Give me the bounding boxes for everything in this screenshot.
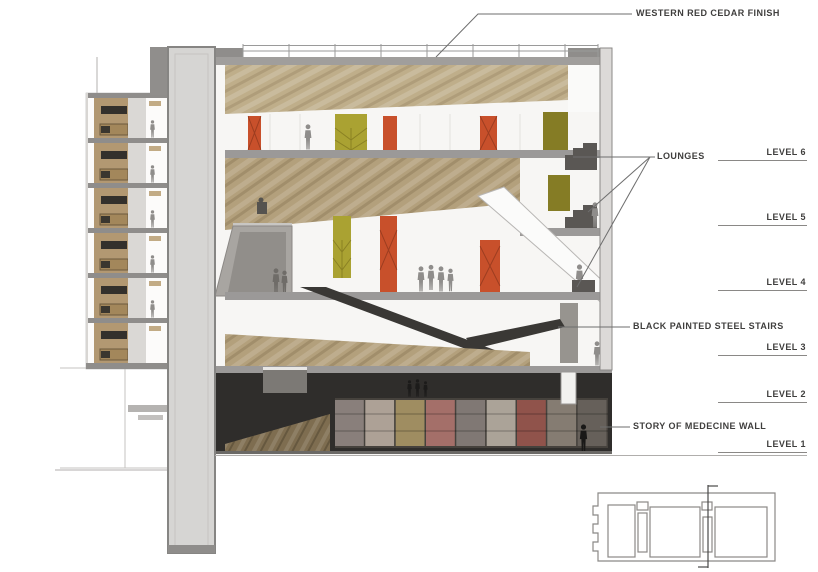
- key-plan-outline: [593, 493, 775, 561]
- seated-person-silhouette: [257, 202, 267, 214]
- white-doorway: [561, 372, 576, 404]
- basement-slab-stub: [128, 405, 172, 412]
- right-exterior-wall: [600, 48, 612, 370]
- key-plan-duct: [637, 502, 648, 510]
- medicine-wall-panels: [335, 400, 607, 446]
- medicine-wall-panel: [396, 400, 425, 446]
- concrete-column: [560, 303, 578, 363]
- key-plan-room: [608, 505, 635, 557]
- medicine-wall-panel: [335, 400, 364, 446]
- key-plan-room: [715, 507, 767, 557]
- level-line: [718, 290, 807, 291]
- lounge-step-seating: [572, 280, 595, 292]
- lounge-olive-wall: [543, 112, 568, 150]
- key-plan-room: [650, 507, 700, 557]
- level-marker-2: LEVEL 2: [718, 389, 807, 403]
- level-label: LEVEL 6: [718, 147, 807, 157]
- basement-slab-stub: [138, 415, 163, 420]
- lounges-callout: LOUNGES: [657, 151, 705, 161]
- level6-slab: [225, 150, 612, 158]
- medicine-wall-panel: [426, 400, 455, 446]
- orange-door: [380, 216, 397, 292]
- medicine-wall-panel: [456, 400, 485, 446]
- roof-slab: [215, 57, 600, 65]
- lounge-olive-wall: [548, 175, 570, 211]
- medicine-wall-panel: [365, 400, 394, 446]
- level-line: [718, 225, 807, 226]
- level-marker-3: LEVEL 3: [718, 342, 807, 356]
- level-marker-4: LEVEL 4: [718, 277, 807, 291]
- roof-railing: [243, 44, 598, 57]
- level-marker-5: LEVEL 5: [718, 212, 807, 226]
- medicine-wall-panel: [487, 400, 516, 446]
- level-label: LEVEL 2: [718, 389, 807, 399]
- left-dorm-tower: [86, 93, 170, 369]
- level-line: [718, 402, 807, 403]
- level-label: LEVEL 4: [718, 277, 807, 287]
- building-section-drawing: [0, 0, 818, 572]
- medicine-wall-callout: STORY OF MEDECINE WALL: [633, 421, 766, 431]
- key-plan-duct: [702, 502, 712, 510]
- level-marker-1: LEVEL 1: [718, 439, 807, 453]
- level-marker-6: LEVEL 6: [718, 147, 807, 161]
- steel-stairs-callout: BLACK PAINTED STEEL STAIRS: [633, 321, 784, 331]
- level-line: [718, 160, 807, 161]
- level-label: LEVEL 1: [718, 439, 807, 449]
- medicine-wall-panel: [547, 400, 576, 446]
- level-label: LEVEL 5: [718, 212, 807, 222]
- elevator-core-shaft: [168, 47, 215, 553]
- cedar-finish-callout: WESTERN RED CEDAR FINISH: [636, 8, 780, 18]
- medicine-wall-panel: [517, 400, 546, 446]
- key-plan: [593, 485, 775, 568]
- level4-slab: [225, 292, 612, 300]
- reception-desk: [263, 367, 307, 393]
- key-plan-shaft: [638, 513, 647, 552]
- ground-floor-slab: [215, 451, 612, 454]
- level-line: [718, 452, 807, 453]
- seated-person-head: [259, 198, 264, 203]
- upper-right-room: [568, 60, 600, 112]
- level-label: LEVEL 3: [718, 342, 807, 352]
- section-drawing-canvas: WESTERN RED CEDAR FINISH LOUNGES BLACK P…: [0, 0, 818, 572]
- orange-door: [383, 116, 397, 150]
- level-line: [718, 355, 807, 356]
